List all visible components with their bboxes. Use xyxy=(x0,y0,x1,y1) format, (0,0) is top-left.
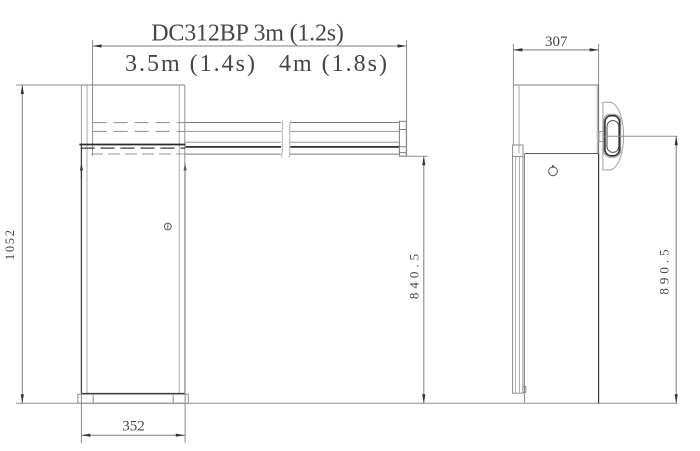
svg-text:840.5: 840.5 xyxy=(406,250,421,299)
svg-text:352: 352 xyxy=(122,419,145,435)
svg-text:3.5m (1.4s) 4m (1.8s): 3.5m (1.4s) 4m (1.8s) xyxy=(125,51,389,77)
svg-text:DC312BP 3m (1.2s): DC312BP 3m (1.2s) xyxy=(151,20,343,46)
svg-text:1052: 1052 xyxy=(3,228,17,260)
svg-text:307: 307 xyxy=(545,34,568,50)
svg-text:890.5: 890.5 xyxy=(657,245,672,294)
